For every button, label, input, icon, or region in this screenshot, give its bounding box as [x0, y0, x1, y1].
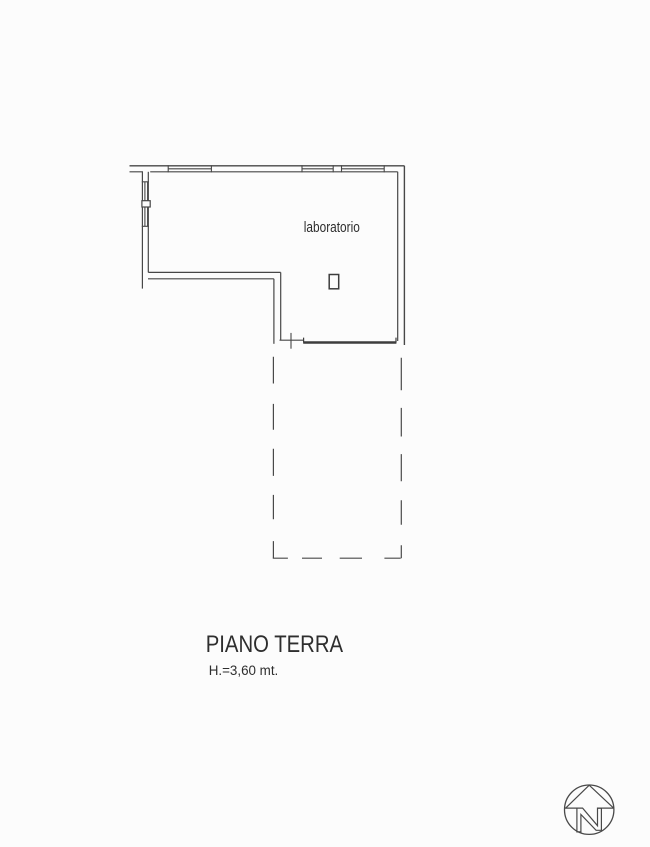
svg-text:PIANO TERRA: PIANO TERRA — [206, 630, 343, 657]
svg-text:H.=3,60 mt.: H.=3,60 mt. — [209, 663, 279, 678]
svg-text:laboratorio: laboratorio — [304, 219, 360, 235]
